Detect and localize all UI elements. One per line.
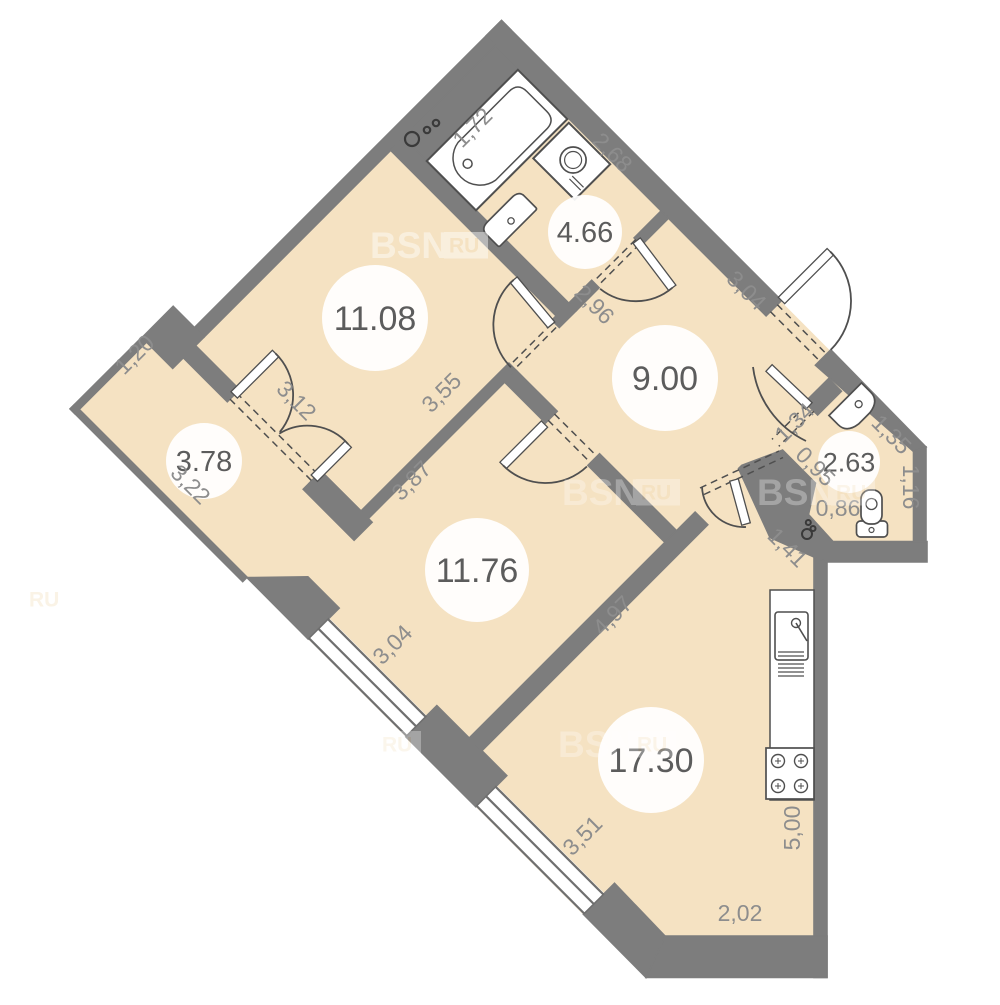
svg-text:4.66: 4.66	[557, 217, 613, 249]
svg-text:5,00: 5,00	[779, 806, 805, 851]
svg-text:RU: RU	[836, 482, 866, 505]
svg-text:RU: RU	[637, 734, 667, 757]
svg-text:BSN: BSN	[558, 724, 636, 765]
svg-text:9.00: 9.00	[632, 360, 698, 398]
svg-text:BSN: BSN	[0, 579, 28, 620]
svg-text:RU: RU	[449, 235, 479, 258]
svg-text:BSN: BSN	[757, 472, 835, 513]
svg-text:RU: RU	[382, 734, 412, 757]
svg-text:2,02: 2,02	[718, 900, 763, 926]
svg-text:11.76: 11.76	[436, 552, 519, 590]
svg-text:11.08: 11.08	[334, 300, 417, 338]
svg-text:BSN: BSN	[303, 724, 381, 765]
svg-text:BSN: BSN	[370, 225, 448, 266]
svg-text:1,16: 1,16	[898, 465, 924, 510]
svg-text:RU: RU	[641, 482, 671, 505]
svg-text:BSN: BSN	[562, 472, 640, 513]
svg-text:RU: RU	[29, 589, 59, 612]
